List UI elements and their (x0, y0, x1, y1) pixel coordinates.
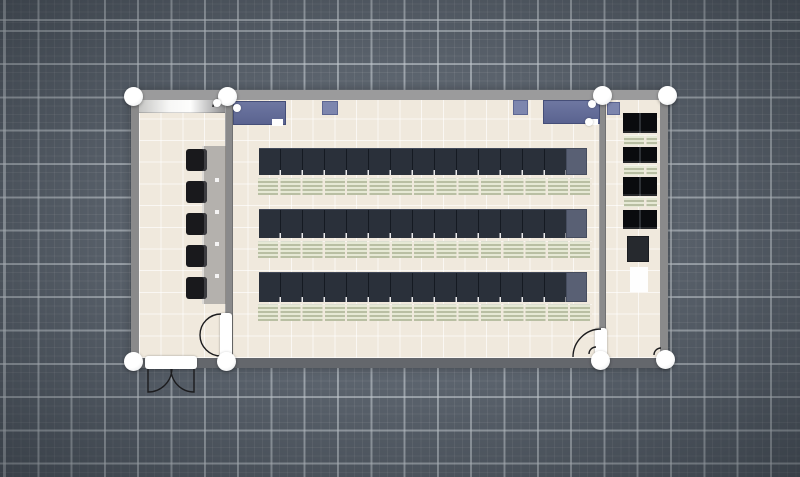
black-desk-pair-4[interactable] (623, 210, 657, 229)
bench-r-1[interactable] (624, 135, 657, 145)
cabinet[interactable] (627, 236, 649, 262)
black-desk-pair-2[interactable] (623, 147, 657, 163)
wall-handle-8[interactable] (656, 350, 675, 369)
stool-2[interactable] (186, 181, 207, 203)
wall-handle-5[interactable] (124, 352, 143, 371)
desk-row-3[interactable] (259, 272, 567, 302)
black-desk-pair-1[interactable] (623, 113, 657, 133)
floorplan-canvas[interactable] (0, 0, 800, 477)
stool-4[interactable] (186, 245, 207, 267)
bench-r-3[interactable] (624, 197, 657, 207)
side-table-2[interactable] (513, 100, 528, 115)
door-swing-arc-2 (171, 369, 194, 392)
desk-row-1-end[interactable] (566, 148, 587, 175)
side-table-1[interactable] (322, 101, 338, 115)
stool-3[interactable] (186, 213, 207, 235)
bench-row-3[interactable] (258, 304, 592, 321)
desk-row-2-end[interactable] (566, 209, 587, 238)
wall-handle-4[interactable] (658, 86, 677, 105)
wall-handle-6[interactable] (217, 352, 236, 371)
stool-5[interactable] (186, 277, 207, 299)
door-swing-arc-1 (148, 369, 172, 392)
black-desk-pair-3[interactable] (623, 177, 657, 196)
divider-wall-right[interactable] (599, 100, 606, 358)
object-handle-dot-4[interactable] (213, 99, 221, 107)
object-handle-dot-3[interactable] (585, 118, 593, 126)
exterior-double-door[interactable] (145, 356, 197, 369)
bench-row-1[interactable] (258, 178, 592, 195)
wall-handle-7[interactable] (591, 351, 610, 370)
bench-r-2[interactable] (624, 165, 657, 175)
object-handle-dot-2[interactable] (588, 100, 596, 108)
desk-row-3-end[interactable] (566, 272, 587, 302)
object-handle-dot-1[interactable] (233, 104, 241, 112)
stool-1[interactable] (186, 149, 207, 171)
desk-row-2[interactable] (259, 209, 567, 238)
side-table-3[interactable] (607, 102, 620, 115)
desk-row-1[interactable] (259, 148, 567, 175)
white-rug[interactable] (630, 267, 648, 292)
wall-handle-1[interactable] (124, 87, 143, 106)
bench-row-2[interactable] (258, 241, 592, 258)
teacher-chair-left[interactable] (272, 119, 283, 126)
